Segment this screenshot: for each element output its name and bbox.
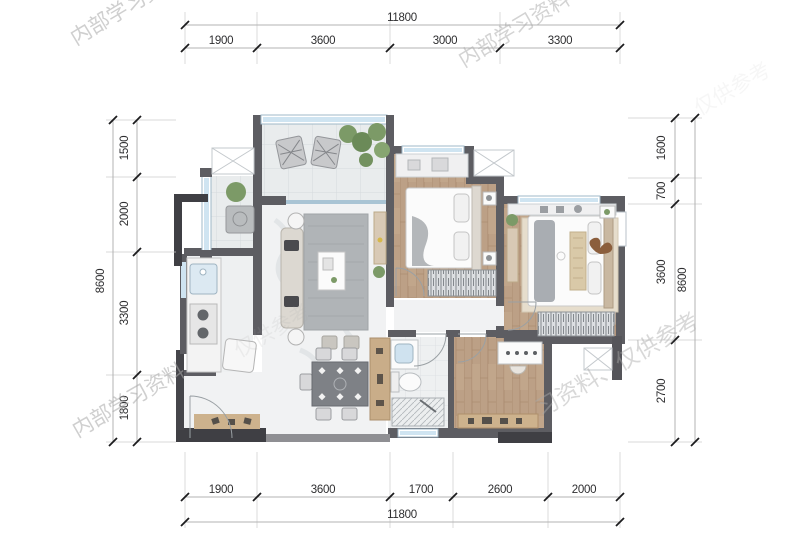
plant-icon (226, 182, 246, 202)
faucet-icon (200, 269, 206, 275)
ac-platform-icon (584, 348, 612, 370)
dining-chair (342, 348, 357, 360)
wall-master-door-stub (496, 326, 504, 338)
balcony-window-glass (263, 117, 385, 122)
bathroom-sink-icon (395, 344, 413, 363)
wall-bedroom2-right (544, 336, 552, 434)
wardrobe (428, 270, 496, 296)
flex-window-post-bottom (200, 250, 212, 258)
toilet-tank (391, 372, 399, 392)
coffee-table-decor (323, 258, 333, 270)
bathroom-window-glass (400, 431, 436, 435)
wall-living-bedroom1 (386, 115, 394, 307)
sofa-cushion (284, 240, 299, 251)
ac-platform-icon (212, 148, 254, 174)
ottoman (344, 336, 359, 349)
burner (198, 310, 209, 321)
plant-icon (506, 214, 518, 226)
ac-platform-icon (474, 150, 514, 176)
wall-bath-bedroom2 (448, 337, 454, 429)
pillow (454, 194, 469, 222)
dining-chair (316, 408, 331, 420)
master-window-glass (520, 198, 598, 202)
pillow (454, 232, 469, 260)
bedroom1-window-glass (404, 148, 462, 152)
kitchen-window (181, 262, 186, 298)
dim-bottom-seg4: 2600 (488, 484, 512, 496)
wall-bath-top-a (388, 330, 416, 337)
dining-chair (300, 374, 312, 390)
flex-window-glass (204, 178, 209, 250)
dim-bottom-total: 11800 (387, 509, 417, 521)
sill-decor (432, 158, 448, 171)
dim-left-total: 8600 (95, 269, 107, 293)
dim-bottom-seg1: 1900 (209, 484, 233, 496)
sofa-cushion (284, 296, 299, 307)
dim-right-seg3: 3600 (656, 260, 668, 284)
plant-icon (604, 209, 610, 215)
lounge-chair-icon (275, 136, 306, 170)
dim-top-seg4: 3300 (548, 35, 572, 47)
wall-bedroom2-bottom-dark (498, 432, 552, 443)
washing-machine-icon (226, 206, 254, 233)
lamp-icon (486, 195, 492, 201)
lounge-chair-icon (311, 136, 342, 169)
dim-bottom-seg2: 3600 (311, 484, 335, 496)
pillow (588, 262, 601, 294)
coffee-table-plant (331, 277, 337, 283)
dim-bottom-seg5: 2000 (572, 484, 596, 496)
tv-decor (378, 238, 383, 243)
side-table-icon (288, 213, 304, 229)
shower-area (392, 398, 444, 426)
dim-left-seg1: 1500 (119, 136, 131, 160)
lamp-icon (486, 255, 492, 261)
wall-slider-stub (262, 196, 286, 205)
ottoman (322, 336, 337, 349)
sill-decor (540, 205, 582, 213)
dim-top-total: 11800 (387, 12, 417, 24)
bed-headboard (472, 186, 481, 270)
dining-chair (316, 348, 331, 360)
dim-bottom-seg3: 1700 (409, 484, 433, 496)
dining-chair (342, 408, 357, 420)
plant-icon (373, 266, 385, 278)
sill-decor (408, 160, 420, 170)
dim-left-seg4: 1800 (119, 396, 131, 420)
wall-ac-nook (612, 336, 622, 380)
dim-right-seg1: 1600 (656, 136, 668, 160)
wall-bedroom1-master (496, 176, 504, 306)
bed-runner (570, 232, 586, 290)
toilet-icon (399, 373, 421, 391)
bed-throw (534, 220, 555, 302)
floor-plan-canvas: 11800 1900 3600 3000 3300 1900 3600 1700… (0, 0, 800, 533)
hallway-floor (394, 300, 504, 332)
wall-dining-bottom (262, 434, 390, 442)
dim-right-seg2: 700 (656, 182, 668, 200)
dim-right-total: 8600 (677, 268, 689, 292)
master-wardrobe (538, 312, 614, 336)
dim-right-seg4: 2700 (656, 379, 668, 403)
kitchen-sink-icon (190, 264, 217, 294)
bed-headboard (604, 212, 613, 308)
dim-left-seg3: 3300 (119, 301, 131, 325)
dim-top-seg1: 1900 (209, 35, 233, 47)
fridge-icon (222, 338, 257, 373)
floor-plan-drawing: 11800 1900 3600 3000 3300 1900 3600 1700… (0, 0, 800, 533)
burner (198, 328, 209, 339)
dim-top-seg3: 3000 (433, 35, 457, 47)
slim-dresser (507, 228, 518, 282)
dim-left-seg2: 2000 (119, 202, 131, 226)
side-table-icon (288, 329, 304, 345)
dim-top-seg2: 3600 (311, 35, 335, 47)
flex-window-post-top (200, 168, 212, 177)
wall-entry-left (176, 350, 184, 430)
wall-kitchen-flex (184, 248, 256, 256)
